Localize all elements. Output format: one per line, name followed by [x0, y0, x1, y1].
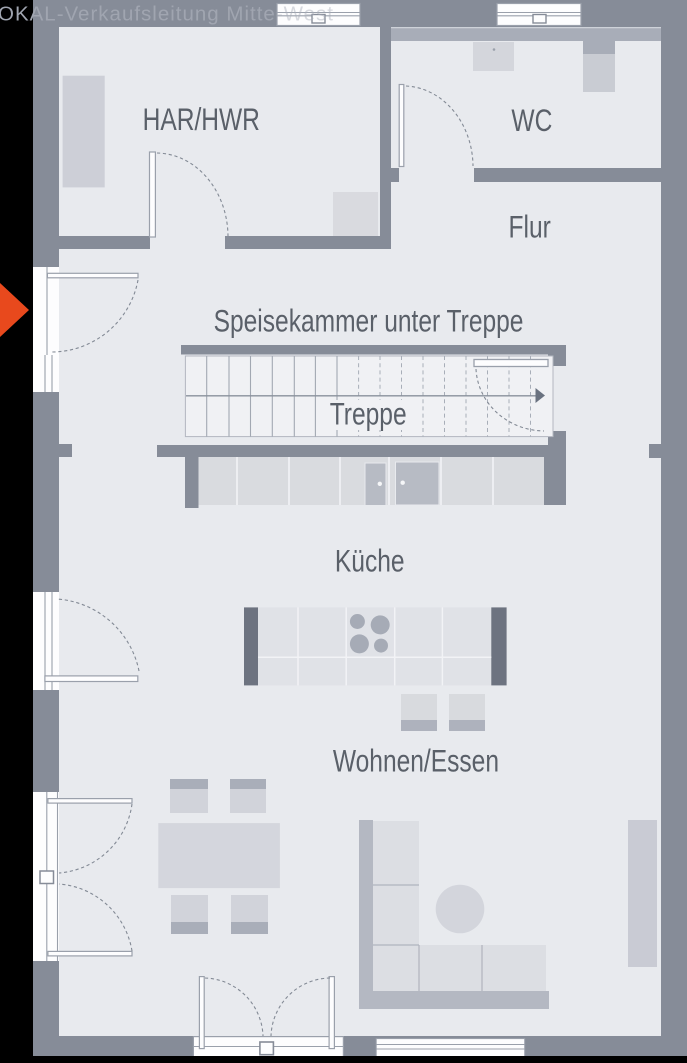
svg-text:Küche: Küche — [335, 543, 405, 579]
svg-text:HAR/HWR: HAR/HWR — [143, 101, 260, 137]
svg-text:Treppe: Treppe — [330, 396, 407, 432]
svg-text:Speisekammer unter Treppe: Speisekammer unter Treppe — [214, 302, 524, 338]
svg-text:Flur: Flur — [509, 209, 551, 245]
svg-text:Wohnen/Essen: Wohnen/Essen — [333, 743, 499, 779]
svg-text:OKAL-Verkaufsleitung Mitte-Wes: OKAL-Verkaufsleitung Mitte-West — [0, 3, 334, 26]
svg-text:WC: WC — [511, 102, 552, 138]
